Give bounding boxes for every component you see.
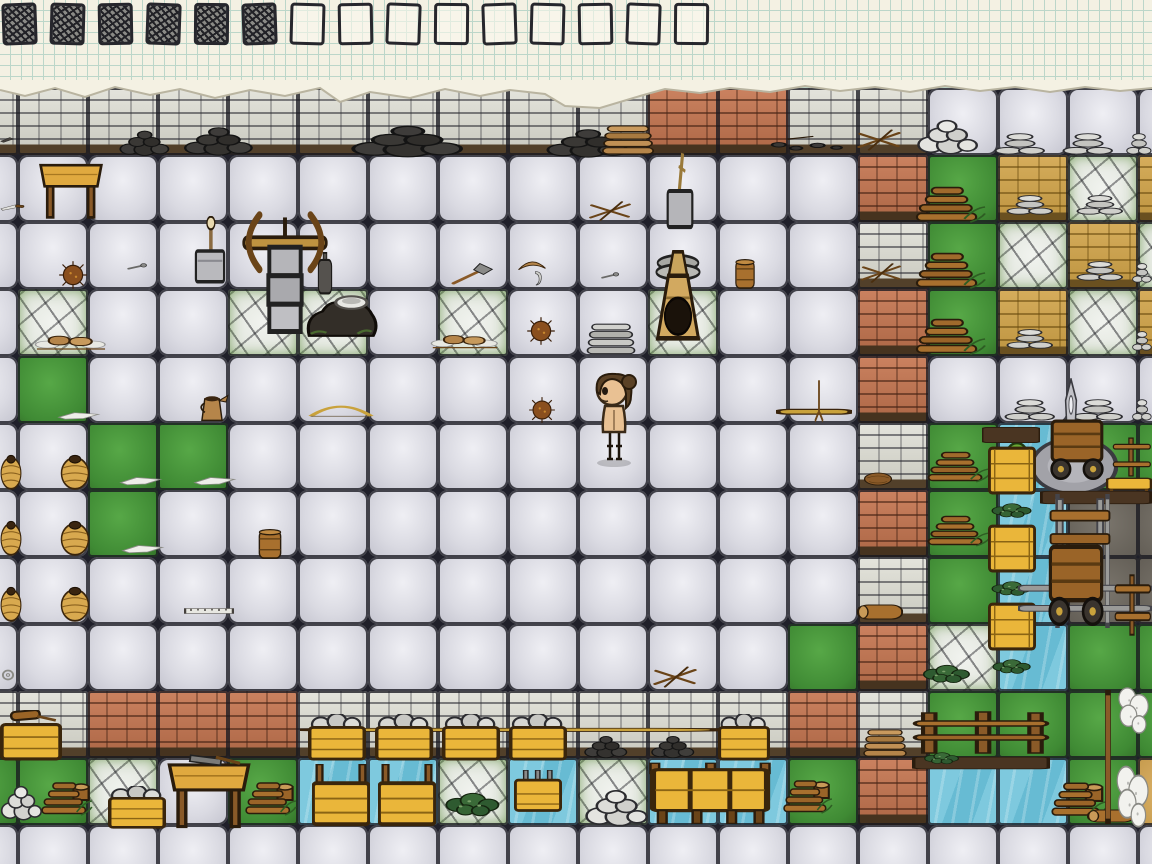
firewood-pile[interactable]: [926, 446, 992, 492]
task-checkbox-15-empty: [674, 3, 709, 45]
small-barrel[interactable]: [256, 528, 284, 560]
crate-with-pegs[interactable]: [514, 770, 562, 816]
task-checkbox-4-checked: [145, 2, 181, 45]
tile-brick-wall[interactable]: [858, 624, 928, 691]
stone-hatchet[interactable]: [450, 262, 494, 288]
tile-stone-floor[interactable]: [648, 490, 718, 557]
tile-stone-floor[interactable]: [718, 490, 788, 557]
tile-brick-wall[interactable]: [858, 356, 928, 423]
task-checkbox-14-empty: [625, 2, 661, 45]
pen-fence-post[interactable]: [1104, 690, 1112, 824]
tile-stone-floor[interactable]: [368, 423, 438, 490]
tile-stone-floor[interactable]: [438, 490, 508, 557]
task-checkbox-2-checked: [49, 3, 85, 46]
bird-nest[interactable]: [862, 468, 894, 488]
firewood-pile[interactable]: [926, 510, 992, 556]
crossed-kindling[interactable]: [858, 260, 904, 286]
small-blade[interactable]: [0, 135, 14, 144]
tile-stone-floor[interactable]: [788, 289, 858, 356]
flint-chip[interactable]: [192, 470, 238, 488]
tile-stone-floor[interactable]: [368, 624, 438, 691]
crossed-kindling[interactable]: [586, 198, 634, 224]
greens-pile[interactable]: [989, 498, 1035, 520]
tile-stone-floor[interactable]: [88, 624, 158, 691]
work-table-with-tools[interactable]: [166, 754, 252, 832]
tile-stone-floor[interactable]: [788, 423, 858, 490]
tile-stone-floor[interactable]: [88, 557, 158, 624]
tile-brick-wall[interactable]: [228, 691, 298, 758]
wooden-crate[interactable]: [988, 444, 1036, 496]
clay-pitcher[interactable]: [194, 388, 230, 424]
tile-flagstone-moss[interactable]: [998, 222, 1068, 289]
domestic-sheep[interactable]: [1114, 686, 1152, 734]
crate-of-stones[interactable]: [442, 714, 500, 762]
tile-stone-floor[interactable]: [718, 289, 788, 356]
hand-cart[interactable]: [1044, 540, 1108, 626]
greens-pile[interactable]: [922, 748, 962, 766]
tile-stone-floor[interactable]: [368, 155, 438, 222]
tile-stone-floor[interactable]: [508, 155, 578, 222]
tile-stone-floor[interactable]: [508, 423, 578, 490]
tile-stone-floor[interactable]: [648, 423, 718, 490]
crossed-kindling[interactable]: [650, 663, 700, 691]
flat-rock-stack[interactable]: [1126, 132, 1152, 156]
tile-stone-floor[interactable]: [508, 624, 578, 691]
burdock-root[interactable]: [528, 396, 556, 424]
tile-stone-floor[interactable]: [718, 825, 788, 864]
tile-flagstone-moss[interactable]: [1068, 289, 1138, 356]
flat-rock-stack[interactable]: [1006, 194, 1054, 216]
fence-rail-section[interactable]: [1112, 572, 1152, 638]
stone-block-with-hammer[interactable]: [188, 216, 232, 286]
flint-chip[interactable]: [118, 470, 164, 488]
round-stone-pile[interactable]: [916, 118, 978, 156]
tile-stone-floor[interactable]: [0, 825, 18, 864]
tile-stone-floor[interactable]: [438, 155, 508, 222]
tile-stone-floor[interactable]: [158, 624, 228, 691]
tile-stone-floor[interactable]: [648, 356, 718, 423]
tile-stone-floor[interactable]: [648, 825, 718, 864]
clay-pot[interactable]: [0, 518, 22, 556]
tile-stone-floor[interactable]: [228, 356, 298, 423]
tile-stone-floor[interactable]: [1068, 825, 1138, 864]
tile-stone-floor[interactable]: [228, 624, 298, 691]
tile-brick-wall[interactable]: [88, 691, 158, 758]
tile-grass[interactable]: [788, 624, 858, 691]
burdock-root[interactable]: [526, 316, 556, 346]
task-checkbox-11-empty: [481, 2, 517, 45]
tile-stone-floor[interactable]: [88, 825, 158, 864]
tile-stone-floor[interactable]: [998, 825, 1068, 864]
tile-stone-floor[interactable]: [788, 557, 858, 624]
flat-rock-stack[interactable]: [1076, 194, 1124, 216]
tile-stone-floor[interactable]: [88, 222, 158, 289]
flint-knife[interactable]: [0, 200, 26, 214]
task-checkbox-13-empty: [578, 3, 614, 46]
tile-stone-floor[interactable]: [578, 490, 648, 557]
tile-stone-floor[interactable]: [0, 356, 18, 423]
tile-stone-floor[interactable]: [0, 222, 18, 289]
flat-rock-stack[interactable]: [1132, 330, 1152, 352]
task-checkbox-6-checked: [241, 2, 277, 45]
iron-ore-pile[interactable]: [118, 126, 176, 158]
tile-stone-floor[interactable]: [578, 624, 648, 691]
firewood-pile[interactable]: [914, 312, 988, 366]
tile-stone-floor[interactable]: [438, 423, 508, 490]
tile-stone-floor[interactable]: [368, 356, 438, 423]
tile-brick-wall[interactable]: [158, 691, 228, 758]
tile-stone-floor[interactable]: [508, 557, 578, 624]
clay-pot[interactable]: [0, 584, 22, 622]
tile-stone-floor[interactable]: [718, 155, 788, 222]
rope-coil[interactable]: [0, 668, 16, 682]
crate-of-stones[interactable]: [308, 714, 366, 762]
small-barrel[interactable]: [733, 258, 757, 290]
wooden-crate[interactable]: [988, 522, 1036, 574]
greens-pile[interactable]: [920, 658, 974, 686]
tile-stone-floor[interactable]: [718, 624, 788, 691]
player-character[interactable]: [588, 370, 642, 470]
wooden-stake[interactable]: [810, 378, 828, 424]
game-viewport: [0, 0, 1152, 864]
tile-stone-floor[interactable]: [788, 222, 858, 289]
bread-loaves[interactable]: [430, 326, 500, 356]
scattered-ore-bits[interactable]: [766, 128, 852, 156]
tile-stone-floor[interactable]: [928, 825, 998, 864]
wooden-log[interactable]: [856, 598, 904, 626]
crate-of-stones[interactable]: [375, 714, 433, 762]
crate-of-stones[interactable]: [108, 786, 166, 830]
iron-ore-pile[interactable]: [583, 732, 633, 760]
greens-pile[interactable]: [442, 784, 504, 820]
tile-stone-floor[interactable]: [368, 557, 438, 624]
tile-stone-floor[interactable]: [718, 557, 788, 624]
long-wooden-bin[interactable]: [648, 762, 772, 826]
flagstone-stack[interactable]: [583, 322, 639, 358]
task-checkbox-10-empty: [434, 3, 469, 45]
task-checkbox-1-checked: [1, 2, 37, 45]
tile-stone-floor[interactable]: [298, 423, 368, 490]
firewood-pile-with-stump[interactable]: [40, 776, 94, 826]
crate-with-fence-posts[interactable]: [378, 764, 436, 828]
clay-plate-stack[interactable]: [860, 728, 910, 760]
tile-stone-floor[interactable]: [438, 557, 508, 624]
clay-pot[interactable]: [60, 452, 90, 490]
crate-with-fence-posts[interactable]: [312, 764, 370, 828]
tile-stone-floor[interactable]: [298, 825, 368, 864]
tile-stone-floor[interactable]: [368, 490, 438, 557]
clay-pot[interactable]: [0, 452, 22, 490]
crate-of-stones[interactable]: [718, 714, 770, 762]
clay-pot[interactable]: [60, 584, 90, 622]
tile-stone-floor[interactable]: [438, 624, 508, 691]
flat-rock-stack[interactable]: [1132, 262, 1152, 284]
task-checkbox-5-checked: [194, 3, 229, 45]
tile-stone-floor[interactable]: [158, 155, 228, 222]
domestic-sheep[interactable]: [1112, 764, 1152, 828]
burdock-root[interactable]: [58, 260, 88, 290]
hunting-bow[interactable]: [308, 396, 374, 422]
adobe-kiln[interactable]: [648, 250, 708, 342]
tile-stone-floor[interactable]: [578, 825, 648, 864]
iron-bolt[interactable]: [600, 269, 620, 283]
flat-rock-stack[interactable]: [1132, 398, 1152, 422]
iron-ore-pile[interactable]: [182, 122, 262, 158]
flat-rock-stack[interactable]: [1006, 328, 1054, 350]
tile-stone-floor[interactable]: [298, 557, 368, 624]
tile-stone-floor[interactable]: [298, 490, 368, 557]
dirt-strip[interactable]: [982, 426, 1040, 444]
crate-with-mallet[interactable]: [0, 710, 62, 762]
tile-stone-floor[interactable]: [718, 423, 788, 490]
tile-stone-floor[interactable]: [788, 825, 858, 864]
tile-stone-floor[interactable]: [438, 356, 508, 423]
greens-pile[interactable]: [990, 654, 1034, 676]
tile-stone-floor[interactable]: [788, 155, 858, 222]
tile-stone-floor[interactable]: [858, 825, 928, 864]
round-stone-pile[interactable]: [584, 788, 648, 828]
bread-loaves[interactable]: [34, 326, 108, 358]
forge-with-bowl[interactable]: [303, 288, 381, 340]
iron-ore-pile[interactable]: [650, 732, 700, 760]
tile-stone-floor[interactable]: [158, 490, 228, 557]
task-checkbox-3-checked: [98, 3, 134, 46]
tile-stone-floor[interactable]: [18, 624, 88, 691]
task-checkbox-7-empty: [289, 3, 325, 46]
task-checklist-paper: [0, 0, 1152, 88]
stone-block-with-shovel[interactable]: [658, 150, 702, 232]
firewood-pile[interactable]: [914, 246, 988, 300]
tile-brick-wall[interactable]: [858, 490, 928, 557]
tile-stone-floor[interactable]: [298, 624, 368, 691]
iron-ore-pile[interactable]: [348, 120, 478, 160]
iron-bolt[interactable]: [126, 260, 148, 274]
crossed-kindling[interactable]: [854, 126, 904, 154]
tile-stone-floor[interactable]: [438, 825, 508, 864]
tile-stone-floor[interactable]: [228, 423, 298, 490]
tile-brick-wall[interactable]: [788, 691, 858, 758]
tile-stone-floor[interactable]: [578, 557, 648, 624]
flint-chip[interactable]: [120, 538, 166, 556]
tile-stone-floor[interactable]: [788, 490, 858, 557]
measuring-stick[interactable]: [184, 606, 234, 616]
torn-paper-edge: [0, 80, 1152, 114]
flint-chip[interactable]: [56, 406, 102, 422]
tile-stone-floor[interactable]: [648, 557, 718, 624]
tile-stone-floor[interactable]: [228, 557, 298, 624]
tile-stone-floor[interactable]: [508, 825, 578, 864]
tile-stone-floor[interactable]: [508, 490, 578, 557]
flat-rock-stack[interactable]: [1062, 132, 1114, 156]
tile-stone-floor[interactable]: [158, 289, 228, 356]
firewood-pile-with-stump[interactable]: [244, 776, 298, 826]
task-checkbox-9-empty: [385, 2, 421, 45]
tile-stone-floor[interactable]: [368, 222, 438, 289]
clay-plate-stack[interactable]: [598, 124, 658, 158]
flat-rock-stack[interactable]: [1076, 260, 1124, 282]
tile-adobe-wall[interactable]: [1138, 155, 1152, 222]
firewood-pile-with-stump[interactable]: [782, 774, 834, 824]
flat-rock-stack[interactable]: [994, 132, 1046, 156]
tile-stone-floor[interactable]: [368, 825, 438, 864]
tile-stone-floor[interactable]: [18, 825, 88, 864]
task-checkbox-8-empty: [338, 3, 374, 46]
crate-of-stones[interactable]: [509, 714, 567, 762]
fence-rail-section[interactable]: [1110, 436, 1152, 478]
tile-stone-floor[interactable]: [0, 289, 18, 356]
tile-stone-floor[interactable]: [928, 356, 998, 423]
wooden-table[interactable]: [38, 156, 104, 222]
hand-cart[interactable]: [1046, 416, 1108, 480]
game-world: [0, 0, 1152, 864]
task-checkbox-12-empty: [529, 3, 565, 46]
bone-hook[interactable]: [530, 270, 546, 288]
clay-pot[interactable]: [60, 518, 90, 556]
firewood-pile[interactable]: [914, 180, 988, 234]
round-stone-pile[interactable]: [0, 784, 42, 822]
tile-stone-floor[interactable]: [1138, 825, 1152, 864]
